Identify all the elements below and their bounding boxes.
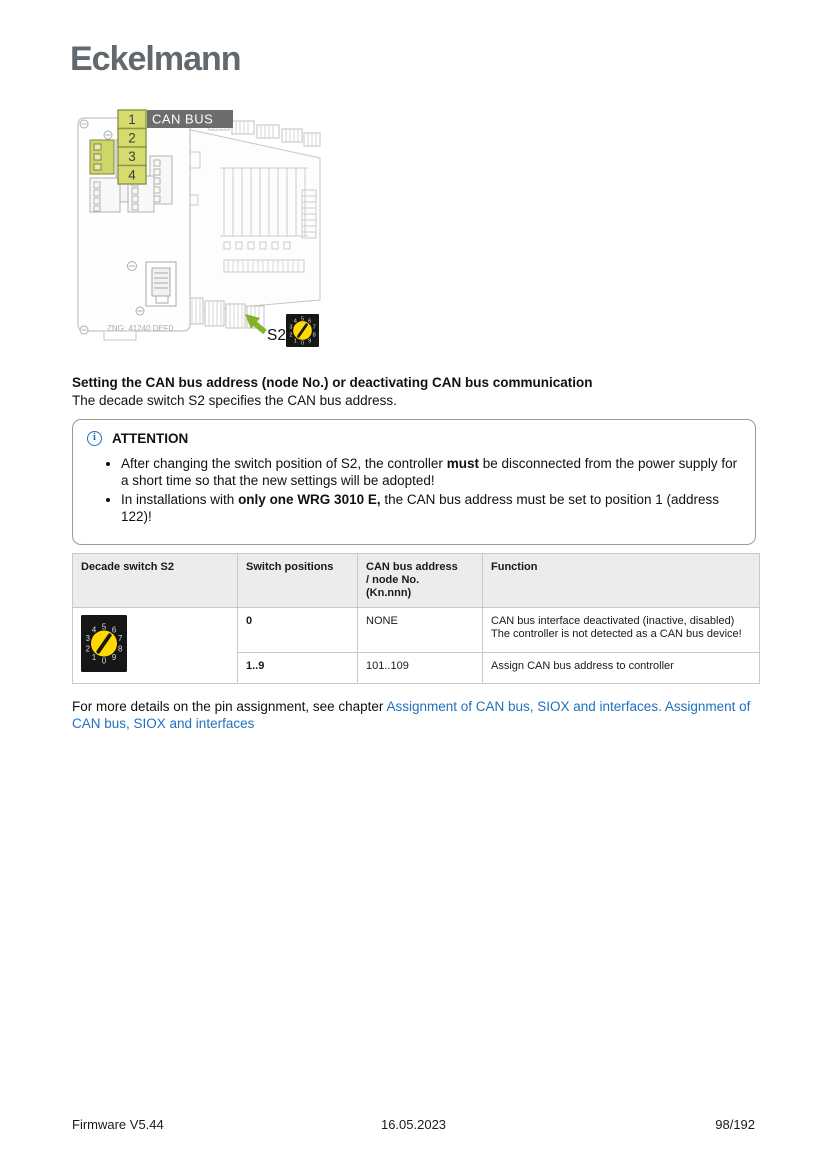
svg-text:3: 3 bbox=[86, 634, 90, 643]
table-header-row: Decade switch S2 Switch positions CAN bu… bbox=[73, 554, 760, 608]
s2-label: S2 bbox=[267, 327, 286, 344]
callout-3: 3 bbox=[128, 149, 136, 164]
svg-text:4: 4 bbox=[294, 319, 297, 325]
footer-page-number: 98/192 bbox=[527, 1117, 755, 1132]
attention-bullet-list: After changing the switch position of S2… bbox=[87, 456, 739, 525]
main-content: Setting the CAN bus address (node No.) o… bbox=[72, 374, 756, 746]
svg-text:2: 2 bbox=[86, 645, 90, 654]
svg-text:CAN BUS: CAN BUS bbox=[152, 112, 213, 127]
col-header-decade-switch: Decade switch S2 bbox=[73, 554, 238, 608]
svg-text:3: 3 bbox=[289, 325, 292, 331]
table-row: 0123456789 0 NONE CAN bus interface deac… bbox=[73, 608, 760, 653]
cell-function: Assign CAN bus address to controller bbox=[483, 653, 760, 684]
bullet-bold-text: only one WRG 3010 E, bbox=[238, 492, 381, 507]
can-bus-connector-highlighted bbox=[90, 140, 114, 174]
svg-text:9: 9 bbox=[308, 338, 311, 344]
page-footer: Firmware V5.44 16.05.2023 98/192 bbox=[72, 1117, 755, 1132]
bullet-bold-text: must bbox=[447, 456, 479, 471]
attention-bullet: After changing the switch position of S2… bbox=[121, 456, 739, 489]
cell-can-address: 101..109 bbox=[358, 653, 483, 684]
svg-text:6: 6 bbox=[112, 626, 116, 635]
footer-firmware-version: Firmware V5.44 bbox=[72, 1117, 300, 1132]
rj45-jack bbox=[146, 262, 176, 306]
svg-text:7: 7 bbox=[118, 634, 122, 643]
footer-date: 16.05.2023 bbox=[300, 1117, 528, 1132]
decade-switch-icon: 0123456789 bbox=[81, 615, 127, 672]
controller-board-figure: ZNG: 41240 DEF0 1 2 3 4 CAN bbox=[74, 100, 324, 350]
svg-text:1: 1 bbox=[294, 338, 297, 344]
col-header-can-bus-address: CAN bus address / node No. (Kn.nnn) bbox=[358, 554, 483, 608]
board-drawing-number: ZNG: 41240 DEF0 bbox=[107, 324, 174, 333]
section-intro: The decade switch S2 specifies the CAN b… bbox=[72, 392, 756, 409]
cell-function: CAN bus interface deactivated (inactive,… bbox=[483, 608, 760, 653]
svg-text:0: 0 bbox=[102, 656, 107, 665]
attention-box: i ATTENTION After changing the switch po… bbox=[72, 419, 756, 545]
cell-can-address: NONE bbox=[358, 608, 483, 653]
can-bus-address-table: Decade switch S2 Switch positions CAN bu… bbox=[72, 553, 760, 684]
pin-assignment-paragraph: For more details on the pin assignment, … bbox=[72, 698, 756, 732]
col-header-function: Function bbox=[483, 554, 760, 608]
cell-switch-position: 0 bbox=[238, 608, 358, 653]
attention-bullet: In installations with only one WRG 3010 … bbox=[121, 492, 739, 525]
svg-text:7: 7 bbox=[313, 325, 316, 331]
attention-title: ATTENTION bbox=[112, 431, 188, 446]
cell-switch-position: 1..9 bbox=[238, 653, 358, 684]
callout-4: 4 bbox=[128, 168, 136, 183]
col-header-switch-positions: Switch positions bbox=[238, 554, 358, 608]
info-icon: i bbox=[87, 431, 102, 446]
svg-text:9: 9 bbox=[112, 653, 116, 662]
decade-switch-icon-small: 0123456789 bbox=[286, 314, 319, 347]
link-assignment-chapter-1[interactable]: Assignment of CAN bus, SIOX and interfac… bbox=[386, 699, 661, 714]
board-drawing: ZNG: 41240 DEF0 1 2 3 4 CAN bbox=[74, 100, 324, 350]
s2-annotation: S2 0123456789 bbox=[245, 314, 319, 347]
decade-switch-cell: 0123456789 bbox=[73, 608, 238, 684]
section-heading: Setting the CAN bus address (node No.) o… bbox=[72, 374, 756, 391]
svg-text:5: 5 bbox=[102, 622, 107, 631]
svg-text:6: 6 bbox=[308, 319, 311, 325]
document-page: Eckelmann bbox=[0, 0, 827, 1169]
eckelmann-logo: Eckelmann bbox=[70, 40, 241, 79]
paragraph-text: For more details on the pin assignment, … bbox=[72, 699, 386, 714]
svg-text:1: 1 bbox=[92, 653, 96, 662]
svg-text:0: 0 bbox=[301, 341, 304, 347]
svg-text:2: 2 bbox=[289, 332, 292, 338]
bullet-text: In installations with bbox=[121, 492, 238, 507]
can-bus-label: CAN BUS bbox=[147, 110, 233, 128]
callout-2: 2 bbox=[128, 131, 136, 146]
svg-text:5: 5 bbox=[301, 316, 304, 322]
svg-text:8: 8 bbox=[313, 332, 316, 338]
svg-text:8: 8 bbox=[118, 645, 122, 654]
callout-1: 1 bbox=[128, 112, 136, 127]
svg-text:4: 4 bbox=[92, 626, 97, 635]
callout-column: 1 2 3 4 bbox=[118, 110, 146, 184]
bullet-text: After changing the switch position of S2… bbox=[121, 456, 447, 471]
